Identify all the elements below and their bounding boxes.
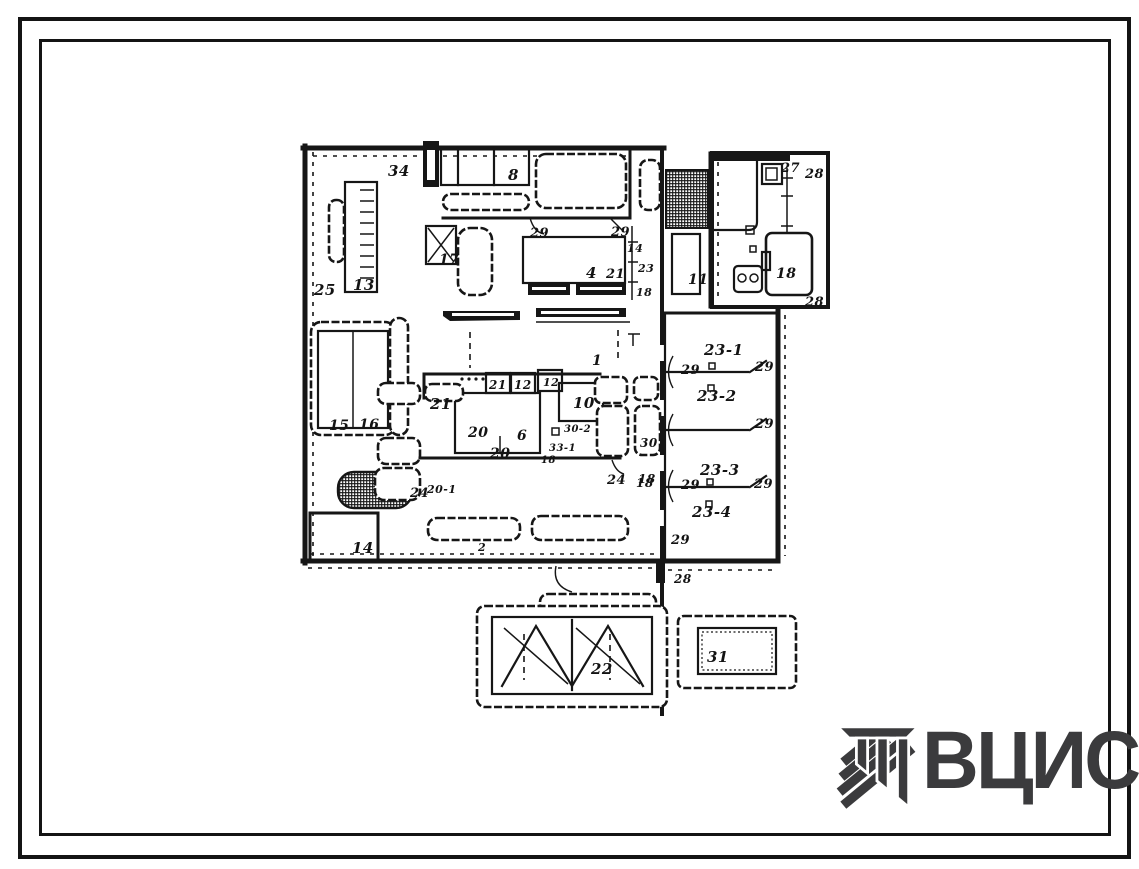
plan-label-21: 21 bbox=[429, 395, 452, 413]
plan-label-29: 29 bbox=[680, 363, 700, 378]
plan-label-28: 28 bbox=[804, 295, 824, 310]
plan-label-34: 34 bbox=[388, 162, 410, 180]
scanned-drawing-page: 348251317292914421231811272818281292923-… bbox=[0, 0, 1139, 869]
plan-label-18: 18 bbox=[638, 472, 656, 486]
plan-label-2: 2 bbox=[477, 541, 486, 554]
plan-label-17: 17 bbox=[439, 252, 459, 268]
vcis-logo-icon bbox=[834, 716, 918, 816]
plan-label-20: 20 bbox=[489, 446, 510, 462]
plan-label-23: 23 bbox=[637, 262, 654, 275]
plan-label-12: 12 bbox=[543, 376, 559, 389]
bottom-bars bbox=[428, 516, 665, 612]
plan-label-11: 11 bbox=[688, 272, 708, 288]
plan-label-20: 20 bbox=[467, 425, 488, 441]
plan-label-18: 18 bbox=[776, 266, 796, 282]
plan-label-10: 10 bbox=[573, 394, 595, 412]
left-furniture bbox=[310, 182, 412, 560]
plan-label-30: 30 bbox=[640, 436, 658, 450]
plan-label-23-4: 23-4 bbox=[691, 503, 732, 521]
plan-label-23-3: 23-3 bbox=[699, 461, 740, 479]
plan-label-21: 21 bbox=[605, 267, 625, 282]
plan-label-12: 12 bbox=[514, 378, 532, 392]
plan-label-29: 29 bbox=[680, 478, 700, 493]
plan-label-13: 13 bbox=[353, 276, 375, 294]
plan-label-29: 29 bbox=[754, 360, 774, 375]
plan-label-29: 29 bbox=[753, 477, 773, 492]
plan-label-4: 4 bbox=[586, 264, 597, 282]
plan-label-18: 18 bbox=[636, 286, 652, 299]
plan-label-20-1: 20-1 bbox=[426, 483, 457, 496]
plan-label-22: 22 bbox=[590, 660, 613, 678]
plan-label-14: 14 bbox=[352, 539, 374, 557]
plan-label-29: 29 bbox=[610, 225, 630, 240]
plan-label-25: 25 bbox=[313, 281, 336, 299]
plan-label-31: 31 bbox=[707, 648, 729, 666]
plan-label-24: 24 bbox=[606, 473, 626, 488]
plan-label-30-2: 30-2 bbox=[564, 424, 591, 435]
plan-label-29: 29 bbox=[754, 417, 774, 432]
plan-label-6: 6 bbox=[517, 428, 527, 444]
plan-label-14: 14 bbox=[627, 242, 643, 255]
plan-label-23-2: 23-2 bbox=[696, 387, 737, 405]
vcis-logo-text: ВЦИС bbox=[922, 720, 1138, 802]
plan-label-8: 8 bbox=[508, 166, 519, 184]
plan-label-27: 27 bbox=[780, 161, 800, 176]
top-rooms bbox=[423, 141, 660, 234]
plan-label-28: 28 bbox=[804, 167, 824, 182]
plan-label-29: 29 bbox=[670, 533, 690, 548]
plan-label-21: 21 bbox=[488, 378, 507, 392]
vcis-logo: ВЦИС bbox=[834, 716, 1139, 816]
plan-label-33-1: 33-1 bbox=[549, 443, 576, 454]
plan-label-29: 29 bbox=[529, 226, 549, 241]
plan-label-15: 15 bbox=[329, 418, 349, 434]
plan-label-18: 18 bbox=[541, 455, 556, 466]
plan-label-16: 16 bbox=[359, 417, 379, 433]
plan-label-28: 28 bbox=[673, 572, 692, 586]
plan-label-1: 1 bbox=[592, 353, 602, 369]
bottom-structures bbox=[477, 606, 796, 707]
plan-label-23-1: 23-1 bbox=[703, 341, 744, 359]
